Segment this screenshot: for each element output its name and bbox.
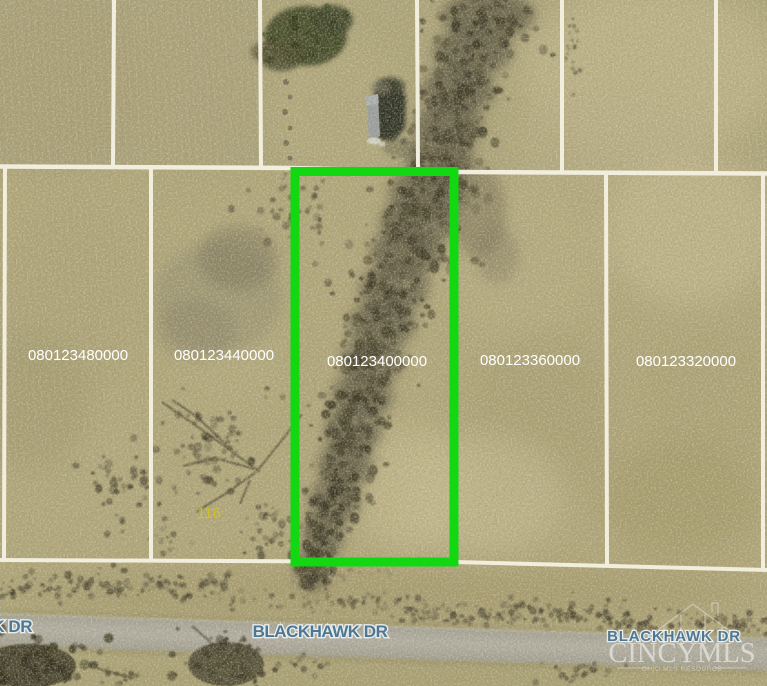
svg-text:BLACKHAWK DR: BLACKHAWK DR: [0, 617, 32, 636]
svg-text:080123320000: 080123320000: [636, 353, 736, 370]
svg-text:080123400000: 080123400000: [327, 353, 427, 370]
svg-text:OHIO MLS RESOURCE: OHIO MLS RESOURCE: [642, 666, 723, 673]
svg-text:080123480000: 080123480000: [28, 347, 128, 364]
svg-text:CINCYMLS: CINCYMLS: [608, 638, 755, 669]
svg-text:080123360000: 080123360000: [480, 352, 580, 369]
svg-text:080123440000: 080123440000: [174, 347, 274, 364]
svg-text:116: 116: [197, 505, 221, 522]
svg-text:BLACKHAWK DR: BLACKHAWK DR: [253, 622, 388, 641]
